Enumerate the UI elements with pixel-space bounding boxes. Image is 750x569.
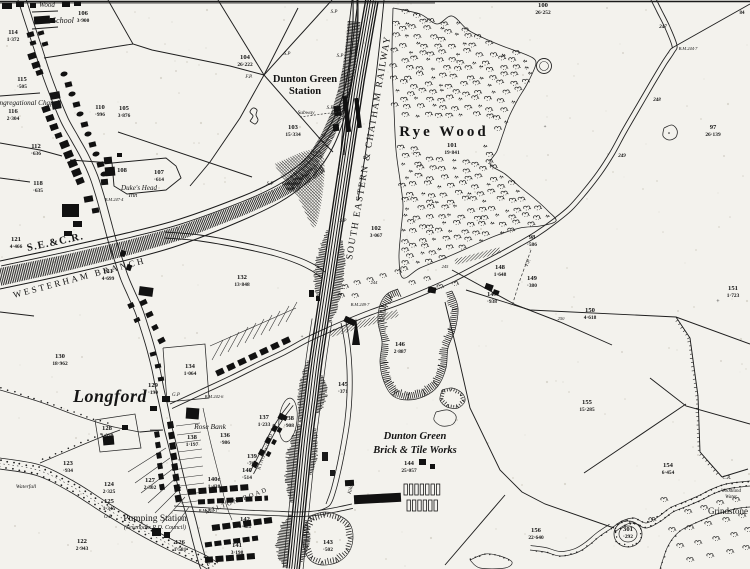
svg-text:1·723: 1·723: [727, 293, 740, 299]
svg-text:144: 144: [404, 460, 415, 467]
svg-text:3·067: 3·067: [370, 233, 383, 239]
svg-text:107: 107: [154, 169, 165, 176]
svg-text:Station: Station: [289, 86, 321, 97]
svg-text:123: 123: [63, 460, 74, 467]
svg-text:97: 97: [710, 124, 717, 131]
svg-text:S.P: S.P: [267, 182, 274, 187]
svg-text:26·139: 26·139: [705, 132, 721, 138]
svg-text:·502: ·502: [323, 547, 333, 553]
svg-text:105: 105: [119, 105, 130, 112]
svg-text:114: 114: [8, 29, 18, 36]
svg-text:244: 244: [371, 280, 379, 285]
svg-text:S.P: S.P: [327, 106, 334, 111]
svg-text:3·198: 3·198: [231, 550, 244, 556]
svg-text:155: 155: [582, 399, 593, 406]
svg-text:140c: 140c: [208, 476, 221, 483]
svg-text:2·887: 2·887: [394, 349, 407, 355]
svg-text:B.M.249·7: B.M.249·7: [351, 302, 371, 307]
svg-text:132: 132: [237, 274, 248, 281]
svg-text:Congregational Chapel: Congregational Chapel: [0, 99, 59, 107]
svg-text:1·090: 1·090: [101, 433, 114, 439]
svg-text:2·304: 2·304: [7, 116, 20, 122]
svg-text:149: 149: [527, 275, 538, 282]
svg-text:1·197: 1·197: [186, 442, 199, 448]
svg-text:1·345: 1·345: [103, 506, 116, 512]
svg-text:·635: ·635: [33, 188, 43, 194]
svg-text:Dunton Green: Dunton Green: [273, 74, 337, 85]
svg-text:127: 127: [145, 477, 156, 484]
svg-text:·380: ·380: [527, 283, 537, 289]
svg-text:S.P: S.P: [331, 10, 338, 15]
svg-text:1·648: 1·648: [494, 272, 507, 278]
svg-text:156: 156: [531, 527, 542, 534]
svg-text:·505: ·505: [17, 84, 27, 90]
svg-text:140: 140: [242, 467, 253, 474]
svg-text:98: 98: [529, 234, 536, 241]
svg-text:106: 106: [78, 10, 89, 17]
svg-text:142: 142: [240, 516, 251, 523]
svg-text:249: 249: [617, 154, 626, 159]
svg-text:S.P: S.P: [284, 52, 291, 57]
svg-text:112: 112: [31, 143, 41, 150]
svg-text:128: 128: [102, 425, 113, 432]
svg-text:S.P: S.P: [340, 219, 347, 224]
svg-text:(Sevenoaks R.D. Council): (Sevenoaks R.D. Council): [124, 524, 186, 531]
svg-text:1·064: 1·064: [184, 371, 197, 377]
svg-text:1·581: 1·581: [174, 547, 187, 553]
svg-text:Rye Wood: Rye Wood: [399, 124, 488, 140]
svg-text:S.P: S.P: [337, 54, 344, 59]
svg-text:100: 100: [538, 2, 549, 9]
svg-text:2·943: 2·943: [76, 546, 89, 552]
svg-text:Subway: Subway: [297, 110, 315, 116]
svg-text:301: 301: [623, 526, 633, 533]
svg-text:3·900: 3·900: [77, 18, 90, 24]
svg-text:B.M.242·6: B.M.242·6: [205, 394, 225, 399]
svg-text:Rose Bank: Rose Bank: [193, 422, 227, 431]
svg-text:129: 129: [148, 382, 159, 389]
svg-text:22·640: 22·640: [528, 535, 544, 541]
svg-text:26·222: 26·222: [237, 62, 253, 68]
svg-text:C.R.: C.R.: [723, 476, 732, 481]
svg-text:13·848: 13·848: [234, 282, 250, 288]
svg-text:O.P: O.P: [104, 515, 112, 520]
svg-text:150: 150: [585, 307, 596, 314]
svg-text:1·481: 1·481: [239, 524, 252, 530]
svg-text:139: 139: [247, 453, 258, 460]
svg-text:2·325: 2·325: [103, 489, 116, 495]
svg-text:141: 141: [232, 542, 242, 549]
svg-text:Waterfall: Waterfall: [16, 483, 37, 490]
svg-text:147: 147: [487, 291, 498, 298]
svg-text:·636: ·636: [31, 151, 41, 157]
svg-text:138: 138: [284, 415, 295, 422]
svg-text:·371: ·371: [338, 389, 348, 395]
svg-text:·934: ·934: [63, 468, 73, 474]
svg-text:148: 148: [495, 264, 506, 271]
svg-text:1·233: 1·233: [258, 422, 271, 428]
svg-text:·986: ·986: [220, 440, 230, 446]
svg-text:3·876: 3·876: [118, 113, 131, 119]
svg-text:110: 110: [95, 104, 105, 111]
svg-text:84: 84: [740, 11, 746, 16]
svg-text:4·699: 4·699: [102, 276, 115, 282]
svg-text:25·057: 25·057: [401, 468, 417, 474]
svg-text:101: 101: [447, 142, 457, 149]
svg-text:121: 121: [11, 236, 21, 243]
svg-text:·938: ·938: [487, 299, 497, 305]
svg-text:F.P.: F.P.: [244, 75, 252, 80]
svg-text:151: 151: [728, 285, 738, 292]
svg-text:·190: ·190: [148, 390, 158, 396]
svg-text:1·372: 1·372: [7, 37, 20, 43]
svg-text:4·466: 4·466: [10, 244, 23, 250]
svg-text:Water: Water: [725, 495, 737, 500]
svg-text:Brick & Tile Works: Brick & Tile Works: [372, 445, 457, 456]
svg-text:Woodland: Woodland: [721, 489, 742, 494]
svg-text:Pumping Station: Pumping Station: [123, 514, 187, 524]
svg-text:+: +: [544, 125, 547, 130]
svg-text:15·285: 15·285: [579, 407, 595, 413]
svg-text:G.P: G.P: [172, 393, 180, 398]
svg-text:18·962: 18·962: [52, 361, 68, 367]
svg-text:122: 122: [77, 538, 88, 545]
svg-text:·514: ·514: [242, 475, 252, 481]
svg-text:102: 102: [371, 225, 382, 232]
svg-text:248: 248: [652, 98, 661, 103]
svg-text:·292: ·292: [623, 534, 633, 540]
svg-text:154: 154: [663, 462, 674, 469]
svg-text:15·334: 15·334: [285, 132, 301, 138]
svg-text:138: 138: [187, 434, 198, 441]
svg-text:Inn: Inn: [128, 192, 138, 199]
svg-text:B.M.247·4: B.M.247·4: [105, 197, 125, 202]
svg-text:Wood: Wood: [39, 1, 55, 9]
svg-text:130: 130: [55, 353, 66, 360]
svg-text:26·252: 26·252: [535, 10, 551, 16]
svg-text:+: +: [301, 335, 304, 340]
svg-text:6·454: 6·454: [662, 470, 675, 476]
svg-text:126: 126: [175, 539, 186, 546]
svg-text:124: 124: [104, 481, 115, 488]
svg-text:125: 125: [104, 498, 115, 505]
svg-text:B.M.244·7: B.M.244·7: [679, 46, 699, 51]
svg-text:School: School: [52, 16, 75, 25]
svg-text:145: 145: [338, 381, 349, 388]
svg-text:4·618: 4·618: [584, 315, 597, 321]
svg-text:116: 116: [8, 108, 18, 115]
svg-text:104: 104: [240, 54, 251, 61]
svg-text:·996: ·996: [95, 112, 105, 118]
svg-text:Dunton Green: Dunton Green: [383, 431, 447, 442]
svg-text:2·302: 2·302: [144, 485, 157, 491]
svg-text:·586: ·586: [527, 242, 537, 248]
svg-text:·614: ·614: [154, 177, 164, 183]
svg-text:108: 108: [117, 167, 128, 174]
svg-text:1·438: 1·438: [208, 484, 221, 490]
svg-text:Duke's Head: Duke's Head: [120, 184, 157, 192]
svg-text:Grindstone: Grindstone: [708, 506, 748, 516]
svg-text:134: 134: [185, 363, 196, 370]
svg-text:Longford: Longford: [72, 386, 148, 406]
svg-text:146: 146: [395, 341, 406, 348]
svg-text:·908: ·908: [284, 423, 294, 429]
svg-text:103: 103: [288, 124, 299, 131]
svg-text:250: 250: [558, 316, 566, 321]
svg-text:247: 247: [658, 25, 667, 30]
svg-text:118: 118: [33, 180, 43, 187]
svg-text:19·841: 19·841: [444, 150, 460, 156]
svg-text:137: 137: [259, 414, 270, 421]
svg-text:143: 143: [323, 539, 334, 546]
svg-text:136: 136: [220, 432, 231, 439]
svg-text:245: 245: [442, 264, 450, 269]
svg-text:115: 115: [17, 76, 27, 83]
